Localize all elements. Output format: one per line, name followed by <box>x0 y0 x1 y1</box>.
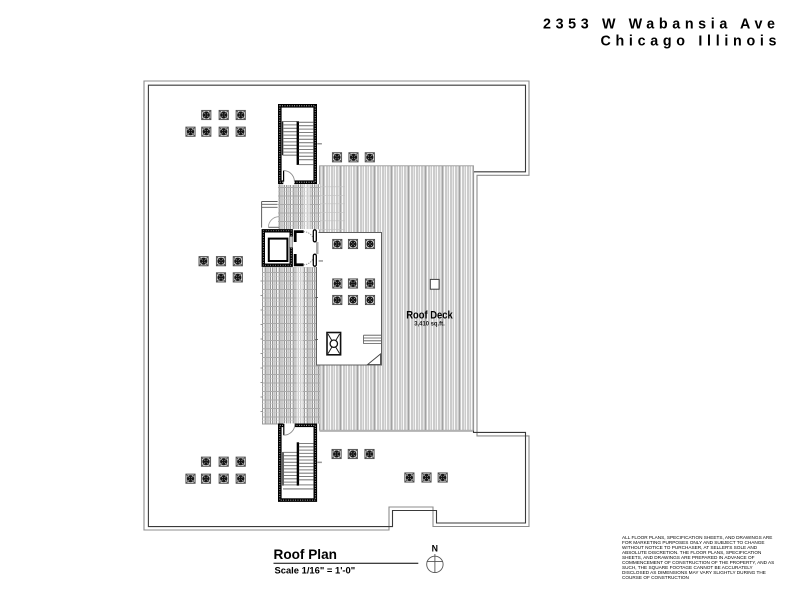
svg-text:N: N <box>432 544 438 554</box>
svg-text:Roof Plan: Roof Plan <box>274 547 337 562</box>
svg-text:3,410 sq.ft.: 3,410 sq.ft. <box>414 321 445 328</box>
svg-text:Roof Deck: Roof Deck <box>406 309 453 321</box>
svg-text:COURSE OF CONSTRUCTION: COURSE OF CONSTRUCTION <box>622 575 689 580</box>
svg-text:Scale 1/16" = 1'-0": Scale 1/16" = 1'-0" <box>275 565 356 576</box>
